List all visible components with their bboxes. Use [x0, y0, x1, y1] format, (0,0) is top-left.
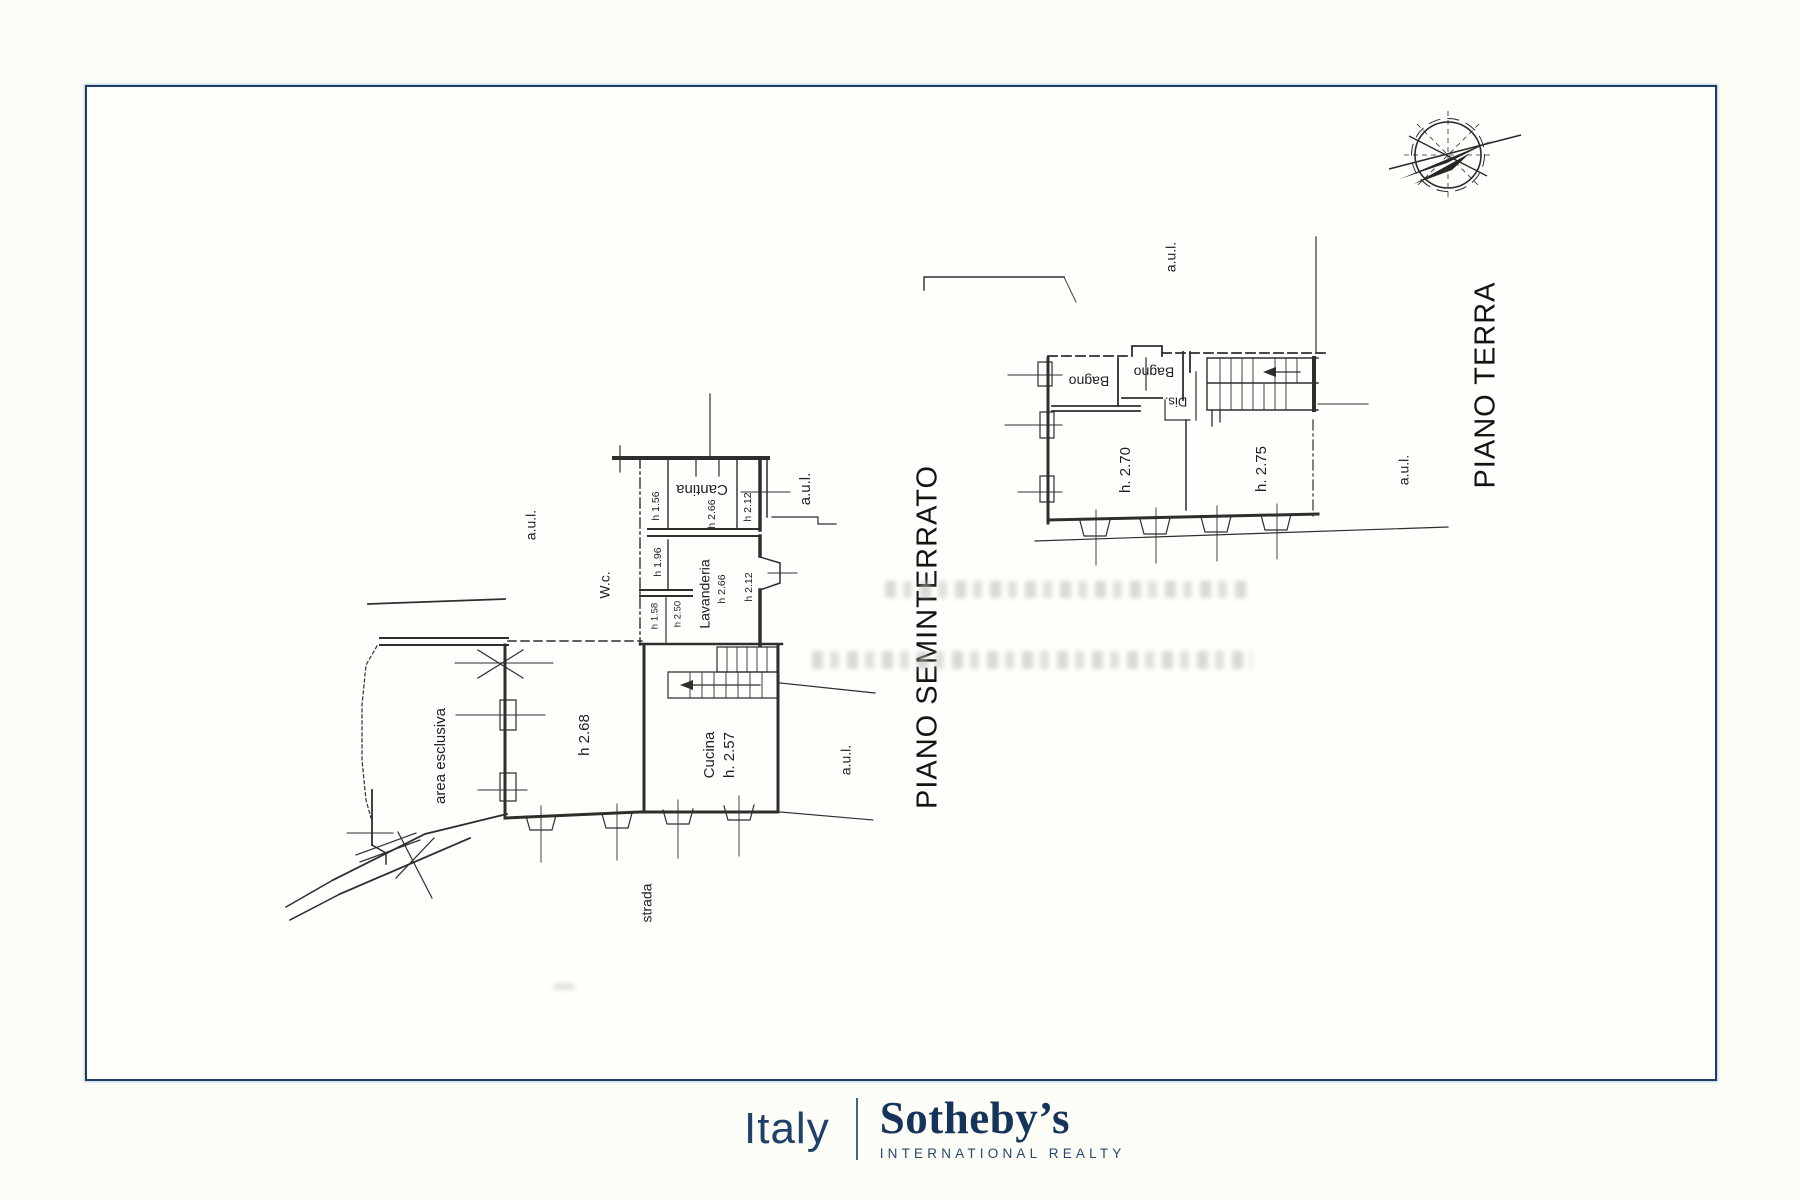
logo-divider-line [856, 1098, 858, 1160]
terra-room-bagno-1: Bagno [1069, 373, 1110, 389]
seminterrato-linework [286, 394, 875, 920]
seminterrato-height-cucina: h. 2.57 [721, 732, 738, 778]
faded-watermark-2 [812, 651, 1252, 669]
terra-height-275: h. 2.75 [1253, 446, 1270, 492]
seminterrato-aul-right: a.u.l. [838, 745, 854, 775]
seminterrato-height-cantina: h 2.66 [706, 499, 718, 528]
seminterrato-height-right-upper: h 2.12 [742, 492, 754, 521]
logo-brand: Sotheby’s [880, 1096, 1126, 1141]
faded-watermark-1 [885, 581, 1250, 598]
seminterrato-height-196: h 1.96 [652, 547, 664, 576]
seminterrato-room-lavanderia: Lavanderia [697, 559, 713, 628]
seminterrato-height-right-lower: h 2.12 [743, 572, 755, 601]
terra-aul-terra-right: a.u.l. [1396, 455, 1412, 485]
floorplan-page: PIANO SEMINTERRATOCantinah 1.56h 2.66h 2… [0, 0, 1800, 1200]
seminterrato-height-250: h 2.50 [673, 601, 684, 627]
seminterrato-room-cantina: Cantina [675, 481, 727, 498]
logo-country: Italy [744, 1104, 830, 1154]
terra-height-270: h. 2.70 [1117, 447, 1134, 493]
floor-plan-drawing: PIANO SEMINTERRATOCantinah 1.56h 2.66h 2… [0, 0, 1800, 1200]
compass-rose-icon [1389, 111, 1521, 199]
faded-smudge [553, 983, 575, 990]
logo-brand-block: Sotheby’s INTERNATIONAL REALTY [880, 1096, 1126, 1161]
terra-room-dis: Dis. [1165, 395, 1187, 410]
seminterrato-height-268: h 2.68 [576, 714, 593, 756]
terra-room-bagno-2: Bagno [1134, 364, 1175, 380]
seminterrato-strada: strada [639, 883, 655, 922]
seminterrato-room-cucina: Cucina [701, 731, 718, 778]
terra-title-terra: PIANO TERRA [1470, 281, 1502, 488]
footer-logo: Italy Sotheby’s INTERNATIONAL REALTY [744, 1096, 1125, 1161]
seminterrato-height-cantina-left: h 1.56 [650, 491, 662, 520]
terra-aul-top: a.u.l. [1163, 242, 1179, 272]
seminterrato-aul-wing: a.u.l. [797, 473, 814, 506]
seminterrato-height-lavanderia: h 2.66 [716, 574, 728, 603]
seminterrato-aul-left: a.u.l. [523, 510, 539, 540]
logo-tagline: INTERNATIONAL REALTY [880, 1146, 1126, 1161]
seminterrato-title-seminterrato: PIANO SEMINTERRATO [912, 465, 944, 809]
seminterrato-area-esclusiva: area esclusiva [432, 707, 449, 804]
seminterrato-room-wc: W.c. [597, 571, 613, 598]
seminterrato-height-158: h 1.58 [650, 603, 661, 629]
